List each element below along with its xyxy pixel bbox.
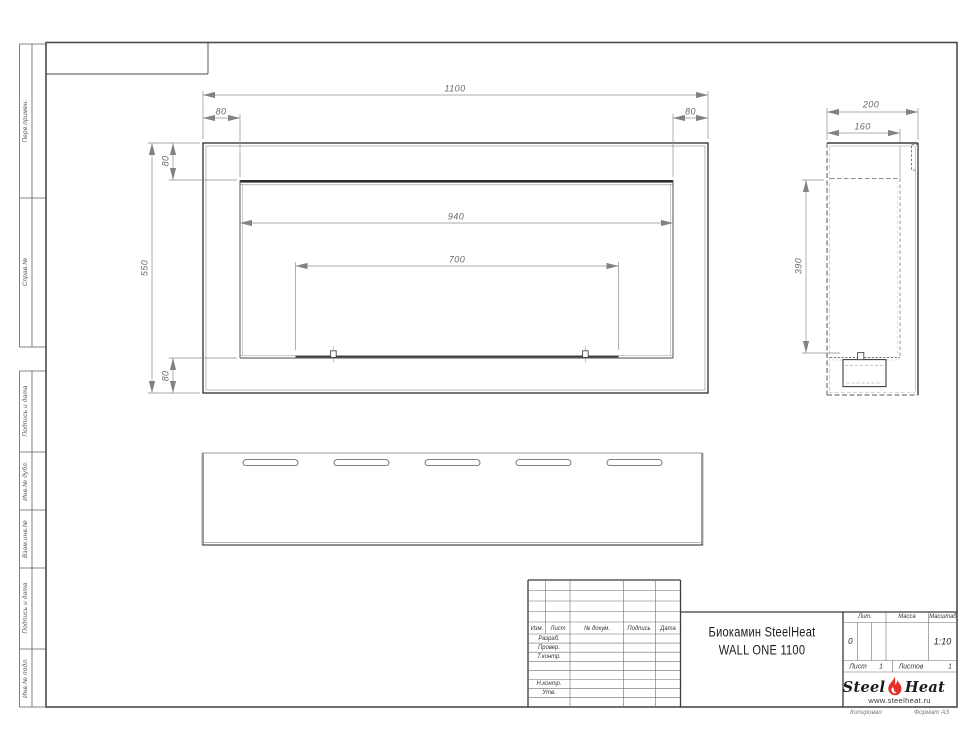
list-label: Лист: [849, 663, 867, 670]
row-utv: Утв.: [542, 690, 555, 696]
row-prover: Провер.: [538, 645, 560, 651]
col-doc: № докум.: [584, 625, 610, 631]
format-label: Формат А3: [914, 709, 949, 715]
col-list: Лист: [550, 625, 565, 631]
row-nkontr: Н.контр.: [537, 681, 562, 687]
strip-label-perv-primen: Перв.примен.: [22, 99, 28, 142]
logo-url: www.steelheat.ru: [868, 697, 931, 705]
strip-label-inv-podl: Инв.№ подл.: [22, 658, 28, 698]
dim-opening-height: 390: [795, 258, 804, 274]
front-view-dimensions: [148, 91, 708, 393]
drawing-sheet: Перв.примен. Справ.№ Подпись и дата Инв.…: [0, 0, 970, 750]
col-podpis: Подпись: [627, 625, 650, 631]
front-view: [203, 143, 708, 393]
row-tkontr: Т.контр.: [537, 654, 561, 660]
row-razrab: Разраб.: [538, 636, 559, 642]
side-view: [827, 143, 918, 395]
side-view-dimensions: [802, 108, 918, 353]
col-izm: Изм.: [530, 625, 543, 631]
dim-overall-width: 1100: [445, 84, 466, 93]
dim-overall-height: 550: [141, 260, 150, 276]
strip-label-podpis-data-2: Подпись и дата: [22, 582, 28, 633]
document-title-line1: Биокамин SteelHeat: [709, 625, 816, 639]
dim-burner-width: 700: [449, 255, 465, 264]
document-title-line2: WALL ONE 1100: [719, 643, 805, 657]
col-data: Дата: [660, 625, 676, 631]
strip-label-sprav-no: Справ.№: [22, 258, 28, 287]
listov-value: 1: [948, 663, 952, 670]
dim-inner-depth: 160: [854, 122, 870, 131]
dim-bottom-offset: 80: [162, 370, 171, 381]
logo-word-steel: Steel: [843, 680, 886, 695]
dim-opening-width: 940: [448, 212, 464, 221]
kopiroval-label: Копировал: [850, 709, 882, 715]
listov-label: Листов: [899, 663, 924, 670]
strip-label-podpis-data-1: Подпись и дата: [22, 385, 28, 436]
strip-label-inv-dubl: Инв.№ дубл.: [22, 461, 28, 501]
lit-value: 0: [848, 638, 852, 646]
list-value: 1: [879, 663, 883, 670]
dim-left-offset: 80: [216, 107, 227, 116]
logo-word-heat: Heat: [905, 680, 945, 695]
masshtab-value: 1:10: [934, 638, 952, 647]
strip-label-vzam-inv: Взам.инв.№: [22, 520, 28, 558]
sheet-frame: [46, 43, 957, 708]
flame-icon: [886, 676, 903, 697]
drawing-geometry: [0, 0, 970, 750]
dim-right-offset: 80: [685, 107, 696, 116]
bottom-view: [202, 453, 703, 545]
massa-label: Масса: [898, 614, 915, 620]
lit-label: Лит.: [858, 614, 872, 620]
vent-slots: [243, 460, 662, 466]
dim-depth: 200: [863, 101, 879, 110]
masshtab-label: Масштаб: [929, 614, 956, 620]
dim-top-offset: 80: [162, 156, 171, 167]
